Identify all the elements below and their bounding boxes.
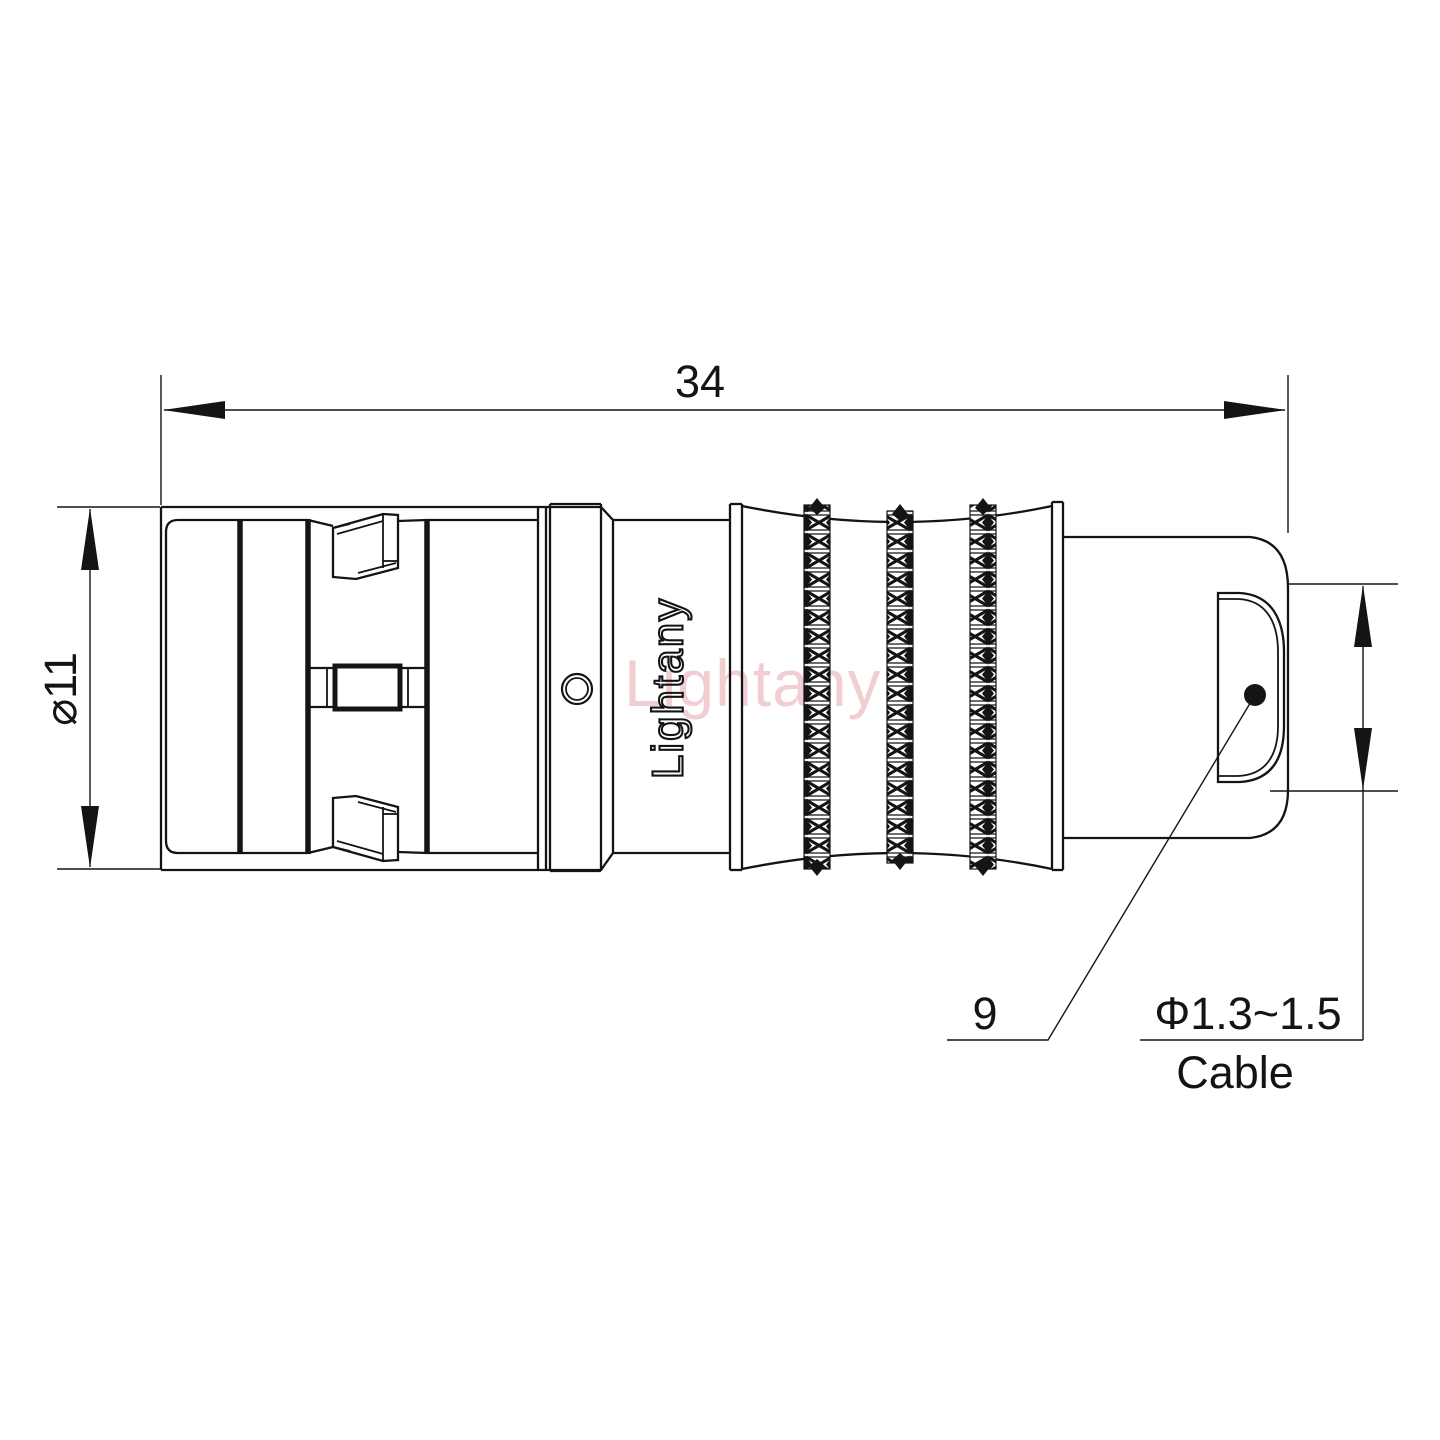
- latch-pin-middle: [308, 666, 427, 709]
- cable-boot: [1063, 537, 1288, 838]
- knurl-band-3: [970, 498, 996, 876]
- overall-length-label: 34: [675, 356, 725, 407]
- technical-drawing-canvas: Lightany: [0, 0, 1440, 1440]
- cable-diameter-range-label: Φ1.3~1.5: [1154, 988, 1341, 1039]
- dimension-cable-entry: Φ1.3~1.5 Cable: [1140, 584, 1398, 1098]
- knurl-band-1: [804, 498, 830, 876]
- dimension-body-diameter: ⌀11: [35, 507, 160, 869]
- cable-word-label: Cable: [1176, 1047, 1294, 1098]
- collar-ring: [550, 504, 613, 871]
- latch-tab-top: [333, 514, 398, 579]
- engraved-logo: Lightany: [644, 597, 693, 779]
- connector-drawing: Lightany: [0, 0, 1440, 1440]
- knurl-band-2: [887, 504, 913, 870]
- boot-ref-label: 9: [972, 988, 997, 1039]
- body-diameter-label: ⌀11: [35, 652, 86, 726]
- latch-tab-bottom: [333, 796, 398, 861]
